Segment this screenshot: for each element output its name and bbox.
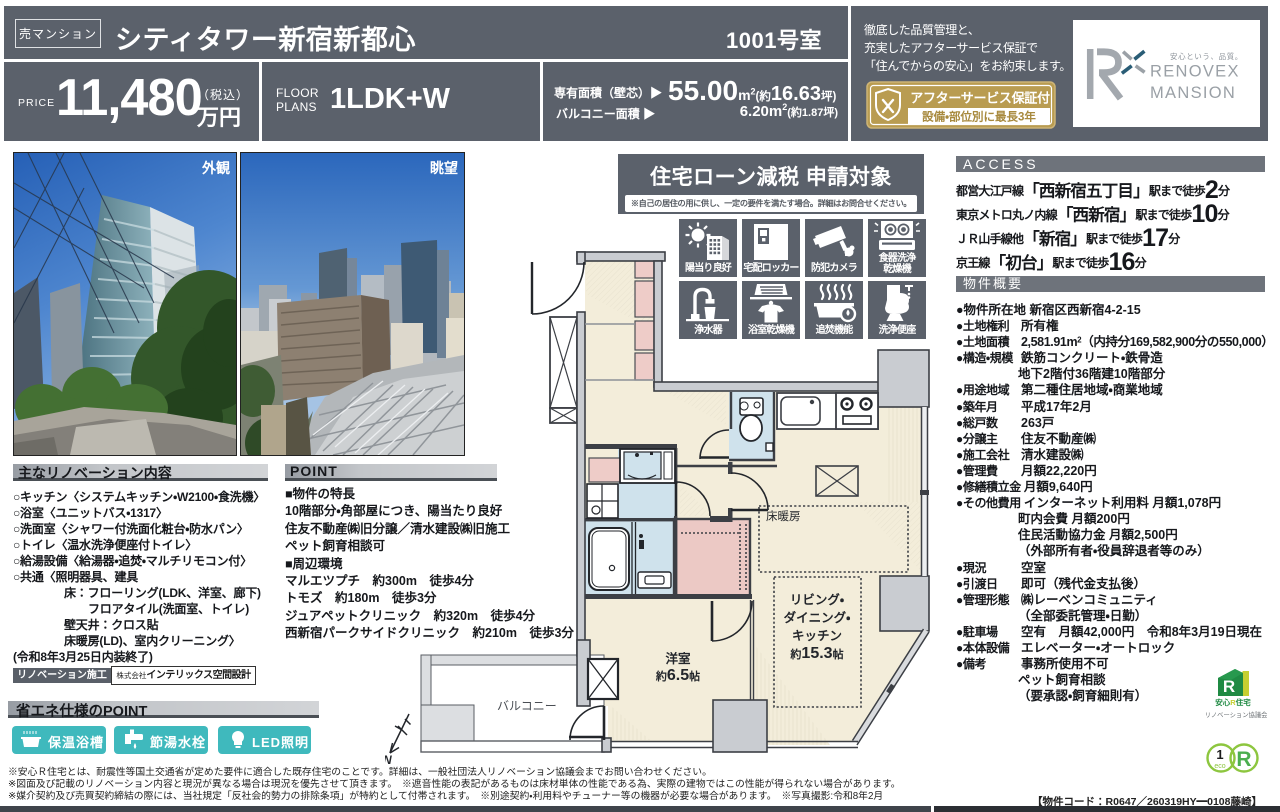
svg-text:アフターサービス保証付: アフターサービス保証付 [910, 91, 1050, 106]
svg-text:バルコニー: バルコニー [497, 699, 557, 713]
svg-text:リビング・: リビング・ [790, 592, 844, 607]
svg-text:設備・部位別に最長3年: 設備・部位別に最長3年 [922, 110, 1036, 124]
svg-text:1: 1 [1216, 747, 1223, 762]
svg-text:N: N [385, 753, 392, 765]
svg-text:RENOVEX: RENOVEX [1150, 63, 1240, 81]
svg-text:キッチン: キッチン [792, 629, 842, 643]
svg-text:MANSION: MANSION [1150, 84, 1236, 102]
svg-text:床暖房: 床暖房 [766, 510, 801, 523]
svg-text:eco: eco [1214, 763, 1225, 770]
svg-text:安心という、品質。: 安心という、品質。 [1170, 51, 1243, 61]
svg-text:R: R [1236, 748, 1251, 771]
svg-text:安心R住宅: 安心R住宅 [1215, 697, 1251, 707]
svg-text:リノベーション協議会: リノベーション協議会 [1205, 710, 1267, 719]
svg-text:R: R [1223, 677, 1235, 696]
svg-text:ダイニング・: ダイニング・ [784, 610, 851, 625]
svg-text:洋室: 洋室 [665, 651, 691, 666]
